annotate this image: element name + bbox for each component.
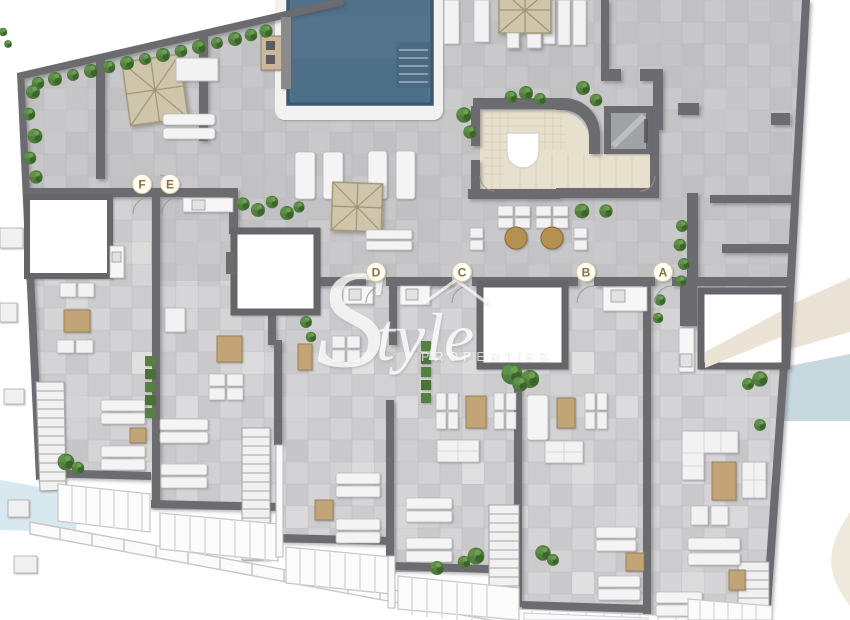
svg-text:D: D	[372, 266, 381, 280]
svg-text:F: F	[138, 178, 145, 192]
svg-text:B: B	[582, 266, 591, 280]
svg-text:PROPERTIES: PROPERTIES	[421, 350, 551, 364]
svg-text:C: C	[458, 266, 467, 280]
svg-text:A: A	[659, 266, 668, 280]
svg-text:E: E	[166, 178, 174, 192]
